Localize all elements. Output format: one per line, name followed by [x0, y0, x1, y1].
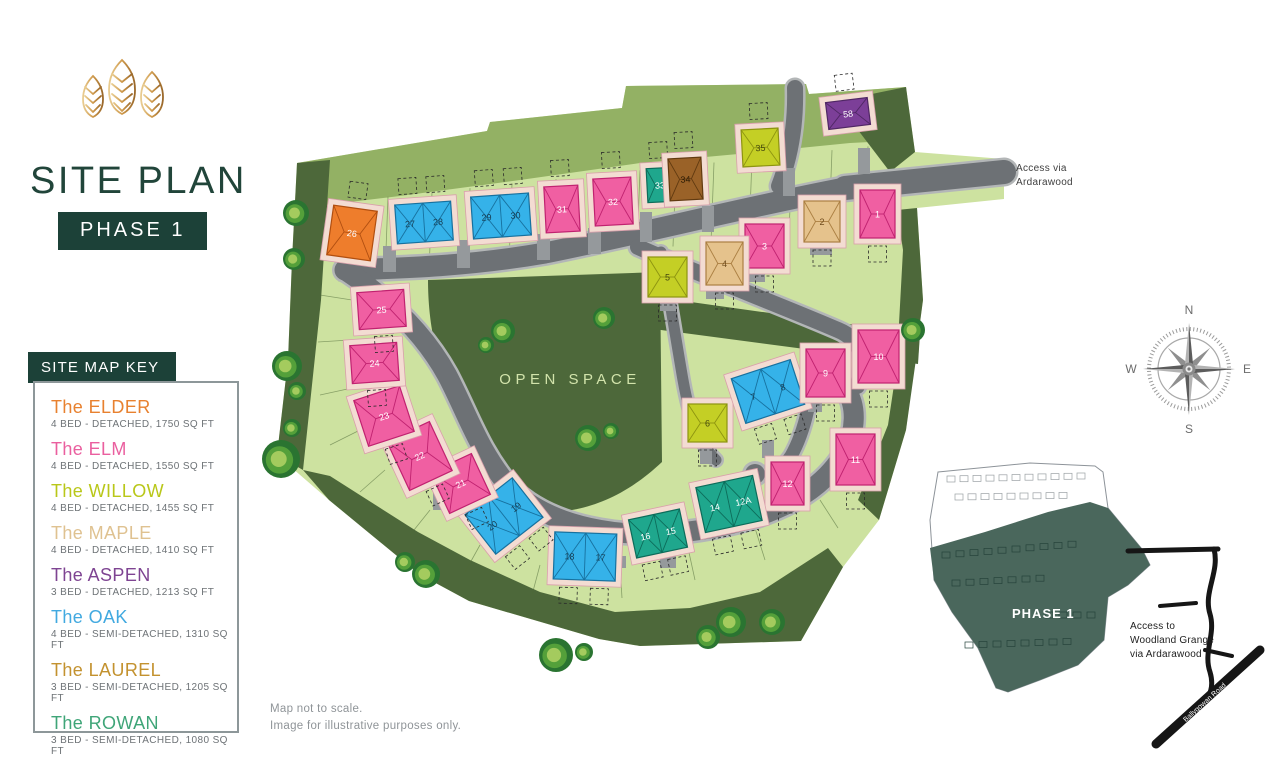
open-space-label: OPEN SPACE — [499, 371, 640, 388]
tree — [288, 382, 306, 400]
plot-number: 15 — [665, 525, 677, 537]
compass-w: W — [1125, 362, 1137, 376]
tree — [759, 609, 785, 635]
tree — [575, 425, 601, 451]
access-label-line2: Ardarawood — [1016, 177, 1073, 188]
plot-number: 5 — [665, 273, 670, 283]
site-plan-page: SITE PLAN PHASE 1 SITE MAP KEY The ELDER… — [0, 0, 1280, 763]
inset-location-map: PHASE 1 Ballygowan Road — [920, 455, 1280, 763]
tree — [478, 337, 494, 353]
tree — [283, 419, 301, 437]
inset-phase-label: PHASE 1 — [1012, 606, 1075, 621]
tree — [283, 200, 309, 226]
plot-number: 18 — [564, 551, 574, 561]
map-disclaimer: Map not to scale. Image for illustrative… — [270, 701, 461, 735]
plot-number: 34 — [680, 174, 691, 185]
plot-number: 2 — [819, 217, 824, 227]
tree — [283, 248, 305, 270]
inset-access-note-line2: Woodland Grange — [1130, 634, 1214, 648]
tree — [603, 423, 619, 439]
tree — [539, 638, 573, 672]
plot-number: 11 — [851, 455, 860, 465]
plot-number: 27 — [405, 219, 416, 230]
tree — [491, 319, 515, 343]
plot-number: 9 — [823, 369, 828, 379]
plot-number: 16 — [639, 531, 651, 543]
compass-e: E — [1243, 362, 1251, 376]
plot-number: 12 — [782, 479, 792, 489]
plot-number: 14 — [709, 502, 721, 514]
tree — [262, 440, 300, 478]
plot-number: 28 — [433, 217, 444, 228]
plot-number: 26 — [346, 228, 357, 239]
tree — [696, 625, 720, 649]
plot-number: 25 — [376, 305, 387, 316]
disclaimer-line2: Image for illustrative purposes only. — [270, 718, 461, 735]
inset-access-note: Access to Woodland Grange via Ardarawood — [1130, 620, 1214, 662]
plot-number: 58 — [842, 108, 853, 119]
tree — [593, 307, 615, 329]
plot-number: 1 — [875, 210, 880, 220]
ballygowan-road-label: Ballygowan Road — [1182, 682, 1227, 724]
plot-number: 3 — [762, 242, 767, 252]
tree — [395, 552, 415, 572]
inset-access-note-line1: Access to — [1130, 620, 1214, 634]
plot-number: 10 — [873, 352, 883, 362]
plot-number: 29 — [481, 212, 492, 223]
tree — [272, 351, 302, 381]
compass-s: S — [1185, 422, 1193, 436]
plot-number: 30 — [510, 210, 521, 221]
compass-n: N — [1185, 303, 1194, 317]
compass-rose: N E S W — [1118, 298, 1260, 440]
tree — [716, 607, 746, 637]
plot-number: 31 — [557, 204, 568, 215]
plot-number: 32 — [608, 197, 619, 208]
plot-number: 35 — [755, 143, 766, 154]
disclaimer-line1: Map not to scale. — [270, 701, 461, 718]
plot-58: 58 — [816, 71, 877, 136]
plot-number: 17 — [595, 552, 605, 562]
access-label-line1: Access via — [1016, 163, 1067, 174]
tree — [901, 318, 925, 342]
plot-number: 6 — [705, 419, 710, 429]
tree — [412, 560, 440, 588]
plot-number: 4 — [722, 259, 727, 269]
tree — [575, 643, 593, 661]
inset-access-note-line3: via Ardarawood — [1130, 648, 1214, 662]
plot-number: 24 — [369, 358, 380, 369]
